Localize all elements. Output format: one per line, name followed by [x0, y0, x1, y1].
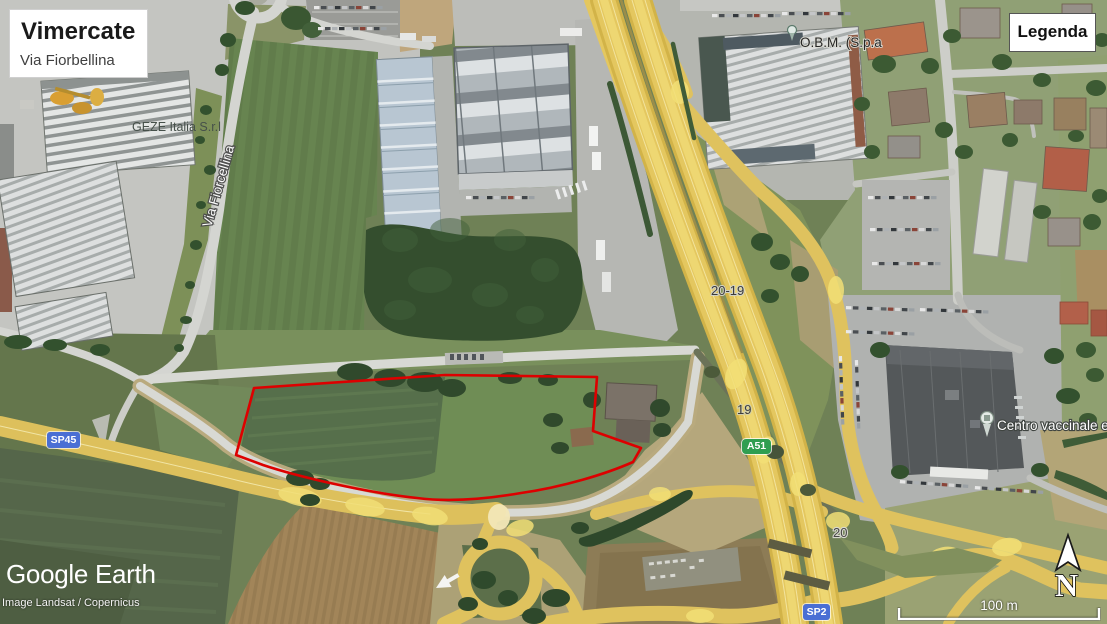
- svg-text:20-19: 20-19: [711, 283, 744, 298]
- svg-text:Centro vaccinale e: Centro vaccinale e: [997, 418, 1107, 433]
- svg-text:19: 19: [737, 402, 751, 417]
- svg-text:O.B.M. (S.p.a: O.B.M. (S.p.a: [800, 35, 882, 50]
- svg-text:GEZE Italia S.r.l: GEZE Italia S.r.l: [132, 120, 221, 134]
- svg-text:N: N: [1055, 567, 1078, 602]
- svg-text:20: 20: [833, 525, 847, 540]
